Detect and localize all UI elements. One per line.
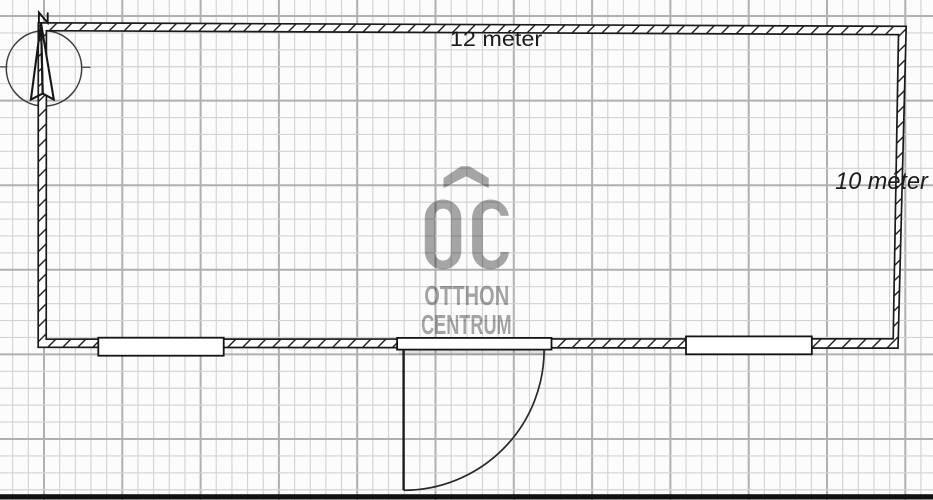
svg-text:OTTHON: OTTHON bbox=[424, 279, 509, 311]
svg-text:12 méter: 12 méter bbox=[450, 27, 542, 51]
svg-text:10 méter: 10 méter bbox=[835, 168, 929, 195]
svg-text:CENTRUM: CENTRUM bbox=[421, 308, 512, 340]
